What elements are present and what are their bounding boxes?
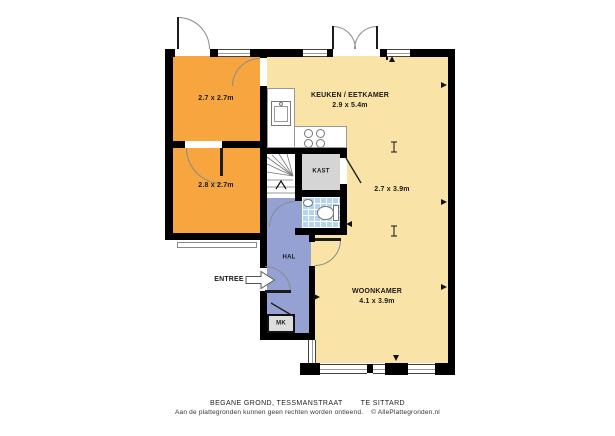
wall	[340, 184, 347, 190]
window	[387, 49, 410, 57]
wall	[295, 190, 347, 197]
door-arc	[178, 17, 210, 49]
stove-burner-icon	[316, 139, 325, 148]
wall	[435, 363, 455, 375]
door-leaf	[220, 148, 223, 176]
footer: BEGANE GROND, TESSMANSTRAATTE SITTARD Aa…	[0, 400, 615, 416]
wall	[165, 141, 185, 148]
window	[303, 49, 327, 57]
label-living-dims: 4.1 x 3.9m	[352, 297, 402, 307]
wall	[260, 49, 267, 58]
wall	[309, 266, 315, 340]
footer-title-address: BEGANE GROND, TESSMANSTRAAT	[210, 400, 343, 407]
label-bedroom-top-dims: 2.7 x 2.7m	[198, 94, 233, 104]
window	[373, 364, 385, 374]
door-leaf	[376, 26, 378, 49]
faucet-icon	[279, 102, 283, 106]
door-arc	[333, 26, 356, 49]
stairs	[267, 154, 295, 193]
wall	[165, 233, 267, 240]
wall	[295, 228, 347, 235]
wall	[340, 154, 347, 158]
kitchen-sink-basin-icon	[274, 106, 288, 122]
door-leaf	[177, 17, 179, 49]
label-kitchen-name: KEUKEN / EETKAMER	[311, 91, 389, 101]
label-middle-dims: 2.7 x 3.9m	[374, 185, 409, 195]
door-leaf	[265, 290, 291, 293]
wall	[327, 49, 333, 57]
footer-disclaimer: Aan de plattegronden kunnen geen rechten…	[0, 409, 615, 416]
door-leaf	[315, 238, 341, 241]
label-hall: HAL	[283, 254, 296, 263]
label-living-name: WOONKAMER	[352, 287, 402, 297]
wall	[380, 49, 387, 57]
stove-burner-icon	[304, 129, 313, 138]
stove-burner-icon	[316, 129, 325, 138]
door-leaf	[332, 26, 334, 49]
footer-copyright: © AllePlattegronden.nl	[371, 409, 440, 416]
label-bedroom-bottom-dims: 2.8 x 2.7m	[198, 181, 233, 191]
footer-disclaimer-text: Aan de plattegronden kunnen geen rechten…	[175, 409, 363, 416]
toilet-tank-icon	[333, 205, 339, 221]
window-sill	[177, 242, 257, 248]
wall	[260, 148, 347, 154]
door-arc	[354, 26, 377, 49]
window	[308, 340, 316, 363]
wall	[385, 363, 408, 375]
label-entree: ENTREE	[214, 275, 244, 285]
stairs-up-arrow-icon	[276, 181, 286, 189]
wall	[250, 49, 303, 57]
washbasin-icon	[303, 199, 313, 207]
wall	[260, 86, 267, 268]
label-closet: KAST	[312, 168, 329, 177]
stove-burner-icon	[304, 139, 313, 148]
floorplan-canvas: 2.7 x 2.7m 2.8 x 2.7m KEUKEN / EETKAMER …	[0, 0, 615, 436]
footer-title: BEGANE GROND, TESSMANSTRAATTE SITTARD	[0, 400, 615, 407]
label-meter-closet: MK	[276, 320, 286, 329]
wall	[300, 363, 320, 375]
toilet-bowl-icon	[317, 206, 334, 220]
wall	[448, 49, 455, 375]
wall	[260, 333, 315, 340]
window	[408, 364, 435, 374]
label-kitchen-dims: 2.9 x 5.4m	[311, 101, 389, 111]
window	[320, 364, 367, 374]
footer-title-city: TE SITTARD	[361, 400, 405, 407]
wall	[210, 49, 218, 57]
label-living: WOONKAMER 4.1 x 3.9m	[352, 287, 402, 307]
label-kitchen: KEUKEN / EETKAMER 2.9 x 5.4m	[311, 91, 389, 111]
window	[218, 49, 250, 57]
wall	[340, 197, 347, 228]
